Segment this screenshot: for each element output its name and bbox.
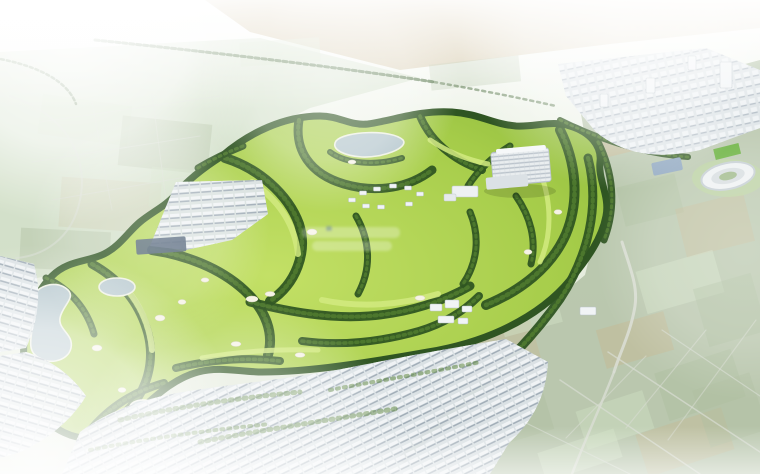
horizon-haze: [0, 0, 760, 110]
clubhouse-annex: [444, 194, 456, 201]
sand-bunker: [554, 210, 562, 215]
villa-building: [417, 192, 424, 196]
campus-building: [458, 318, 468, 324]
campus-building: [580, 307, 596, 315]
masterplan-render: [0, 0, 760, 474]
sand-bunker: [415, 296, 425, 301]
villa-building: [378, 205, 385, 209]
campus-building: [445, 300, 459, 308]
watermark-line-1: [302, 227, 400, 238]
campus-building: [438, 316, 454, 323]
villa-building: [406, 202, 413, 206]
sand-bunker: [265, 292, 275, 297]
sand-bunker: [524, 250, 532, 255]
watermark-logo: [326, 226, 332, 231]
campus-building: [430, 304, 442, 311]
campus-building: [462, 306, 472, 312]
haze: [30, 110, 270, 350]
watermark-line-2: [312, 241, 392, 251]
masterplan-image: [0, 0, 760, 474]
foreground-haze: [0, 426, 760, 474]
